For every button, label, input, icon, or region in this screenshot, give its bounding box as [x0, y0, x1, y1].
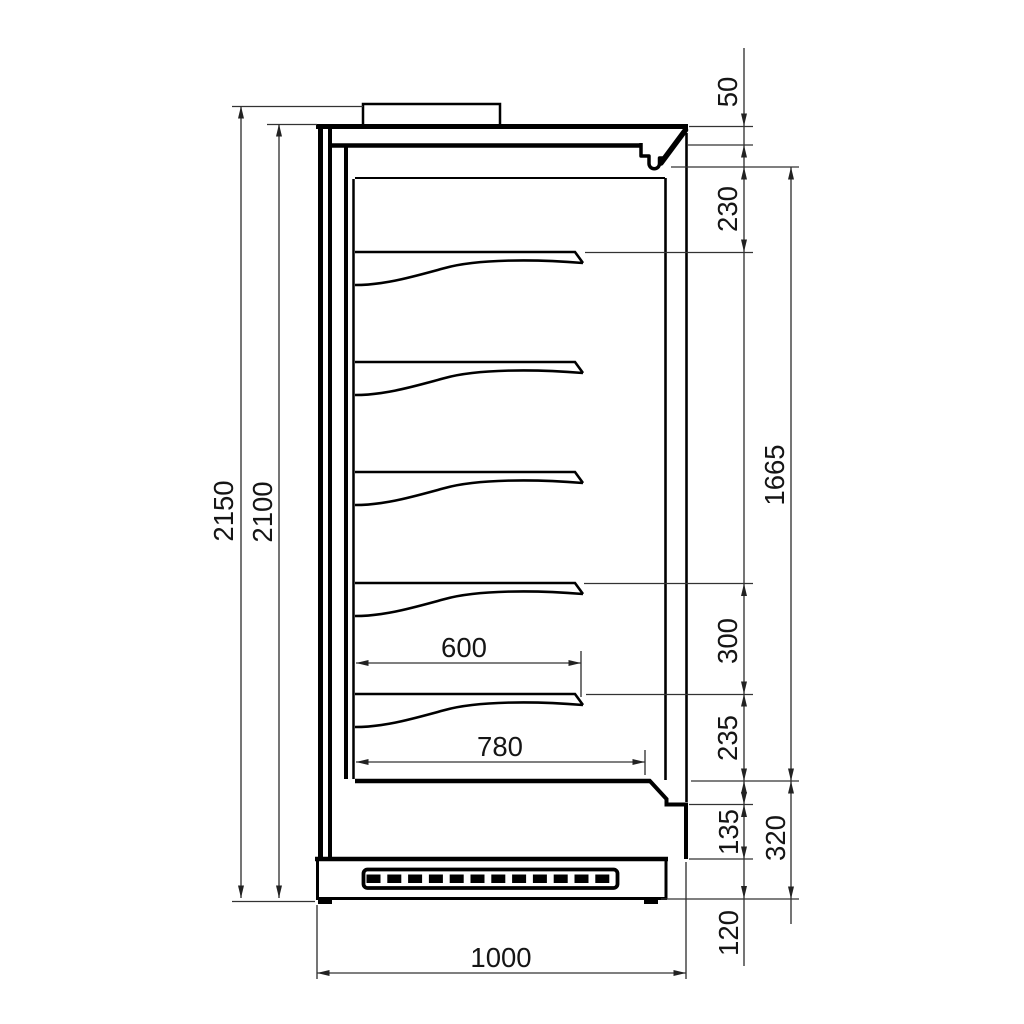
- dim-label-bottom-clearance: 235: [712, 715, 743, 761]
- dim-label-shelf-spacing: 300: [712, 618, 743, 664]
- dim-label-top-clearance: 230: [712, 186, 743, 232]
- dim-label-canopy-front: 50: [712, 77, 743, 108]
- dim-label-shelf-depth: 600: [441, 632, 487, 663]
- foot-right: [644, 898, 658, 904]
- multideck-section-drawing: 2150 2100 50 230 300 235 135 120: [0, 0, 1024, 1024]
- dim-label-front-panel: 135: [713, 809, 744, 855]
- dim-label-overall-height: 2150: [208, 480, 239, 541]
- foot-left: [318, 898, 332, 904]
- dim-label-base-section: 320: [760, 815, 791, 861]
- dim-label-opening-height: 1665: [759, 444, 790, 505]
- technical-drawing-page: 2150 2100 50 230 300 235 135 120: [0, 0, 1024, 1024]
- dim-label-overall-depth: 1000: [470, 942, 531, 973]
- dim-label-cabinet-height: 2100: [247, 481, 278, 542]
- dim-label-bottom-shelf-depth: 780: [477, 731, 523, 762]
- dim-label-plinth-height: 120: [713, 910, 744, 956]
